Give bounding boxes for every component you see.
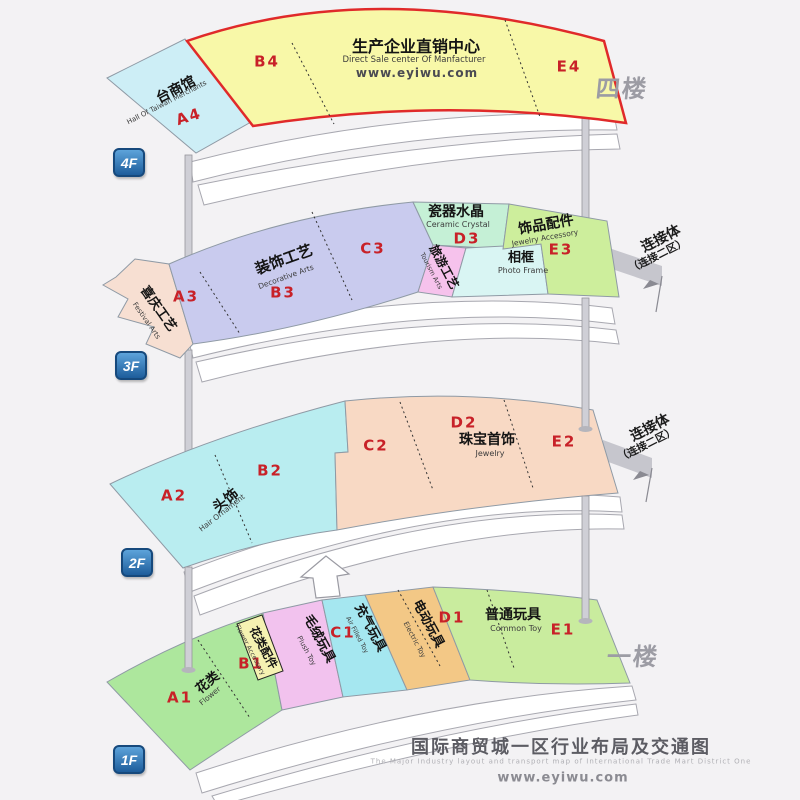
map-subtitle: The Major Industry layout and transport … [371,759,752,766]
common-toy-zh: 普通玩具 [485,608,541,622]
zone-code-a2: A2 [161,489,187,504]
photo-frame-zh: 相框 [508,252,534,265]
badge-3f: 3F [115,351,147,380]
zone-code-b4: B4 [254,55,280,70]
zone-code-d1: D1 [439,611,466,626]
map-website: www.eyiwu.com [497,772,628,785]
zone-code-a3: A3 [173,290,199,305]
ceramic-crystal-en: Ceramic Crystal [426,221,490,229]
zone-code-c2: C2 [363,439,388,454]
zone-code-e4: E4 [557,60,582,75]
badge-2f: 2F [121,548,153,577]
zone-code-e1: E1 [551,623,576,638]
zone-code-c3: C3 [360,242,385,257]
direct-sale-center-url: www.eyiwu.com [356,67,478,79]
floor-name-4: 四楼 [595,77,650,101]
zone-code-e2: E2 [552,435,577,450]
zone-code-e3: E3 [549,243,574,258]
zone-code-b2: B2 [257,464,283,479]
direct-sale-center-zh: 生产企业直销中心 [352,39,480,55]
zone-code-d2: D2 [451,416,478,431]
badge-1f: 1F [113,745,145,774]
floor-map-drawing [0,0,800,800]
roof-band-4f-3f [190,113,620,205]
ceramic-crystal-zh: 瓷器水晶 [428,205,484,219]
zone-code-d3: D3 [454,232,481,247]
jewelry-en: Jewelry [476,450,505,458]
floor-name-1: 一楼 [606,645,661,669]
trade-mart-floor-map: 4F 3F 2F 1F 台商馆 Hall Of Taiwan Merchants… [0,0,800,800]
jewelry-zh: 珠宝首饰 [459,433,515,447]
map-title: 国际商贸城一区行业布局及交通图 [411,739,711,757]
zone-code-b3: B3 [270,286,296,301]
direct-sale-center-en: Direct Sale center Of Manfacturer [342,56,485,65]
badge-4f: 4F [113,148,145,177]
zone-code-a1: A1 [167,691,193,706]
common-toy-en: Common Toy [490,625,542,633]
photo-frame-en: Photo Frame [498,267,548,275]
